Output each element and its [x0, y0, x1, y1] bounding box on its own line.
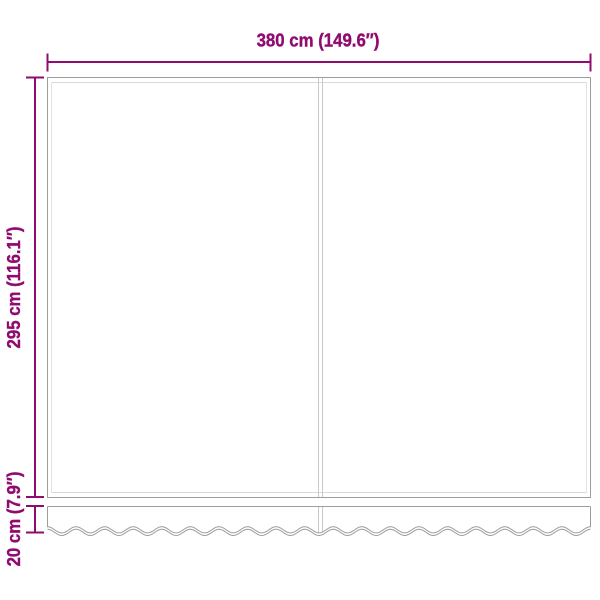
svg-text:20 cm (7.9″): 20 cm (7.9″) [3, 472, 24, 567]
svg-text:295 cm (116.1″): 295 cm (116.1″) [3, 226, 24, 348]
svg-text:380 cm (149.6″): 380 cm (149.6″) [257, 30, 380, 51]
